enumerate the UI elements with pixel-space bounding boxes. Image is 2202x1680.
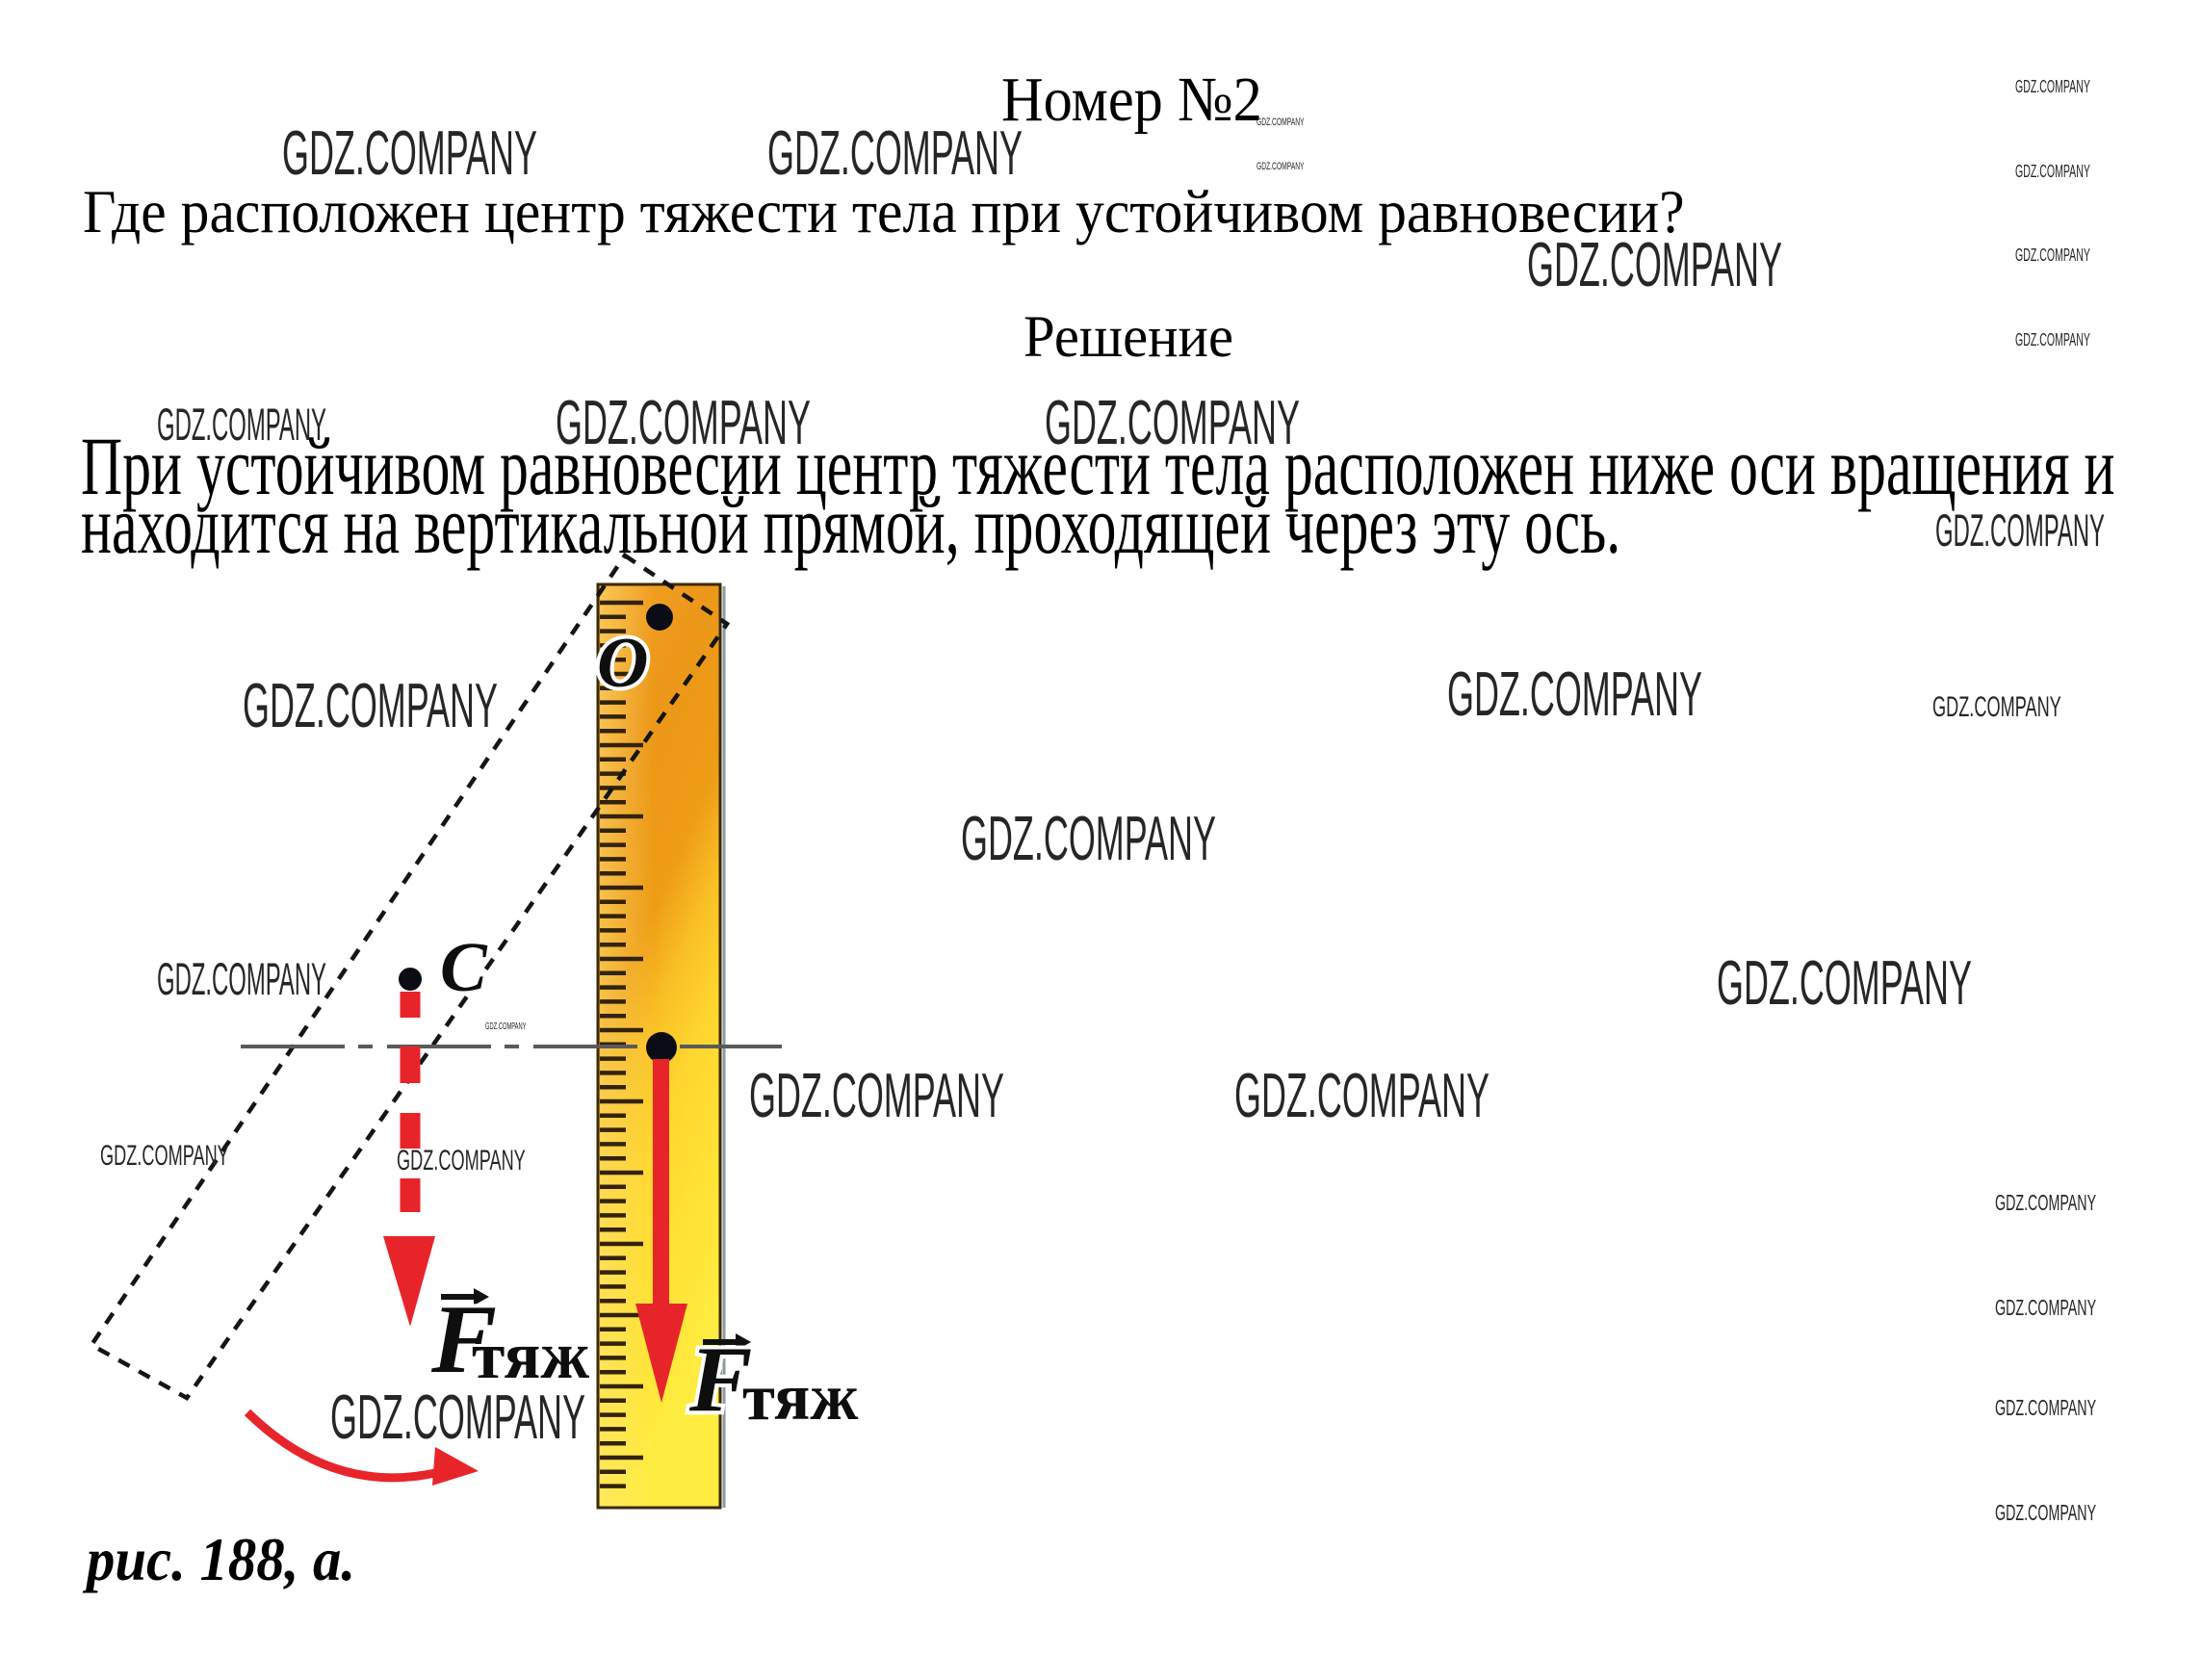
svg-text:тяж: тяж — [742, 1360, 858, 1434]
svg-text:O: O — [597, 624, 648, 703]
svg-text:C: C — [440, 928, 488, 1006]
